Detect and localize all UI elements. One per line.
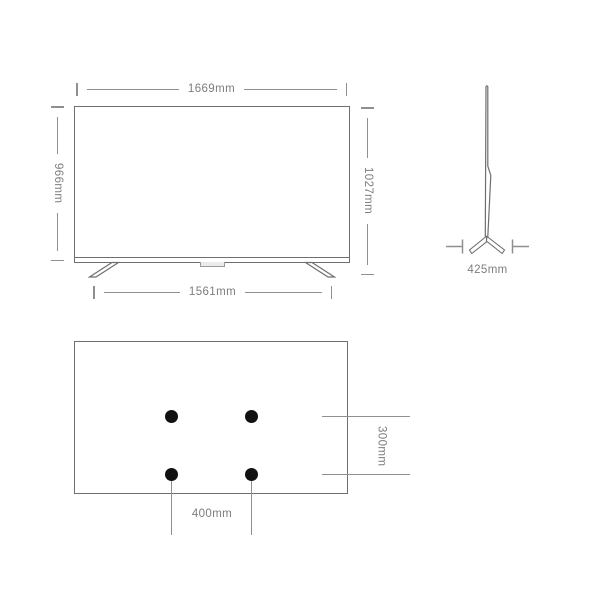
dimension-line [87, 89, 179, 90]
dimension-tick [346, 83, 348, 96]
rear-view-outline [74, 341, 348, 494]
dimension-line [245, 292, 321, 293]
dimension-panel-height: 966mm [50, 106, 64, 261]
base-depth-label: 425mm [447, 265, 528, 277]
side-panel-back-edge [488, 86, 491, 237]
dimension-line [244, 89, 336, 90]
vesa-hole-top-right [245, 410, 258, 423]
vesa-extension-line-right [251, 475, 252, 535]
dimension-total-height: 1027mm [360, 107, 374, 275]
panel-height-label: 966mm [51, 163, 63, 203]
dimension-tick [51, 106, 64, 108]
dimension-line [104, 292, 180, 293]
overall-width-label: 1669mm [188, 84, 235, 96]
dimension-line [57, 213, 58, 251]
vesa-width-label: 400mm [172, 509, 252, 521]
tv-dimensions-diagram: 1669mm 966mm 1027mm 1561mm [0, 0, 615, 615]
dimension-overall-width: 1669mm [76, 83, 347, 96]
dimension-tick [76, 83, 78, 96]
side-panel-front-edge [485, 86, 486, 237]
dimension-tick [51, 260, 64, 262]
vesa-hole-top-left [165, 410, 178, 423]
stand-span-label: 1561mm [189, 287, 236, 299]
vesa-extension-line-bottom [322, 474, 410, 475]
front-left-foot [90, 263, 119, 278]
dimension-line [57, 117, 58, 155]
total-height-label: 1027mm [361, 167, 373, 214]
dimension-line [367, 224, 368, 265]
dimension-line [367, 118, 368, 159]
vesa-height-label: 300mm [375, 417, 387, 475]
vesa-hole-bottom-right [245, 468, 258, 481]
dimension-tick [361, 274, 374, 276]
side-stand-back-leg [486, 237, 504, 254]
dimension-tick [93, 286, 95, 299]
vesa-extension-line-left [171, 475, 172, 535]
front-right-foot [306, 263, 335, 278]
vesa-extension-line-top [322, 416, 410, 417]
dimension-tick [361, 107, 374, 109]
vesa-hole-bottom-left [165, 468, 178, 481]
side-stand-front-leg [470, 237, 488, 254]
dimension-stand-span: 1561mm [93, 286, 332, 299]
side-view-profile [440, 80, 540, 260]
dimension-tick [331, 286, 333, 299]
